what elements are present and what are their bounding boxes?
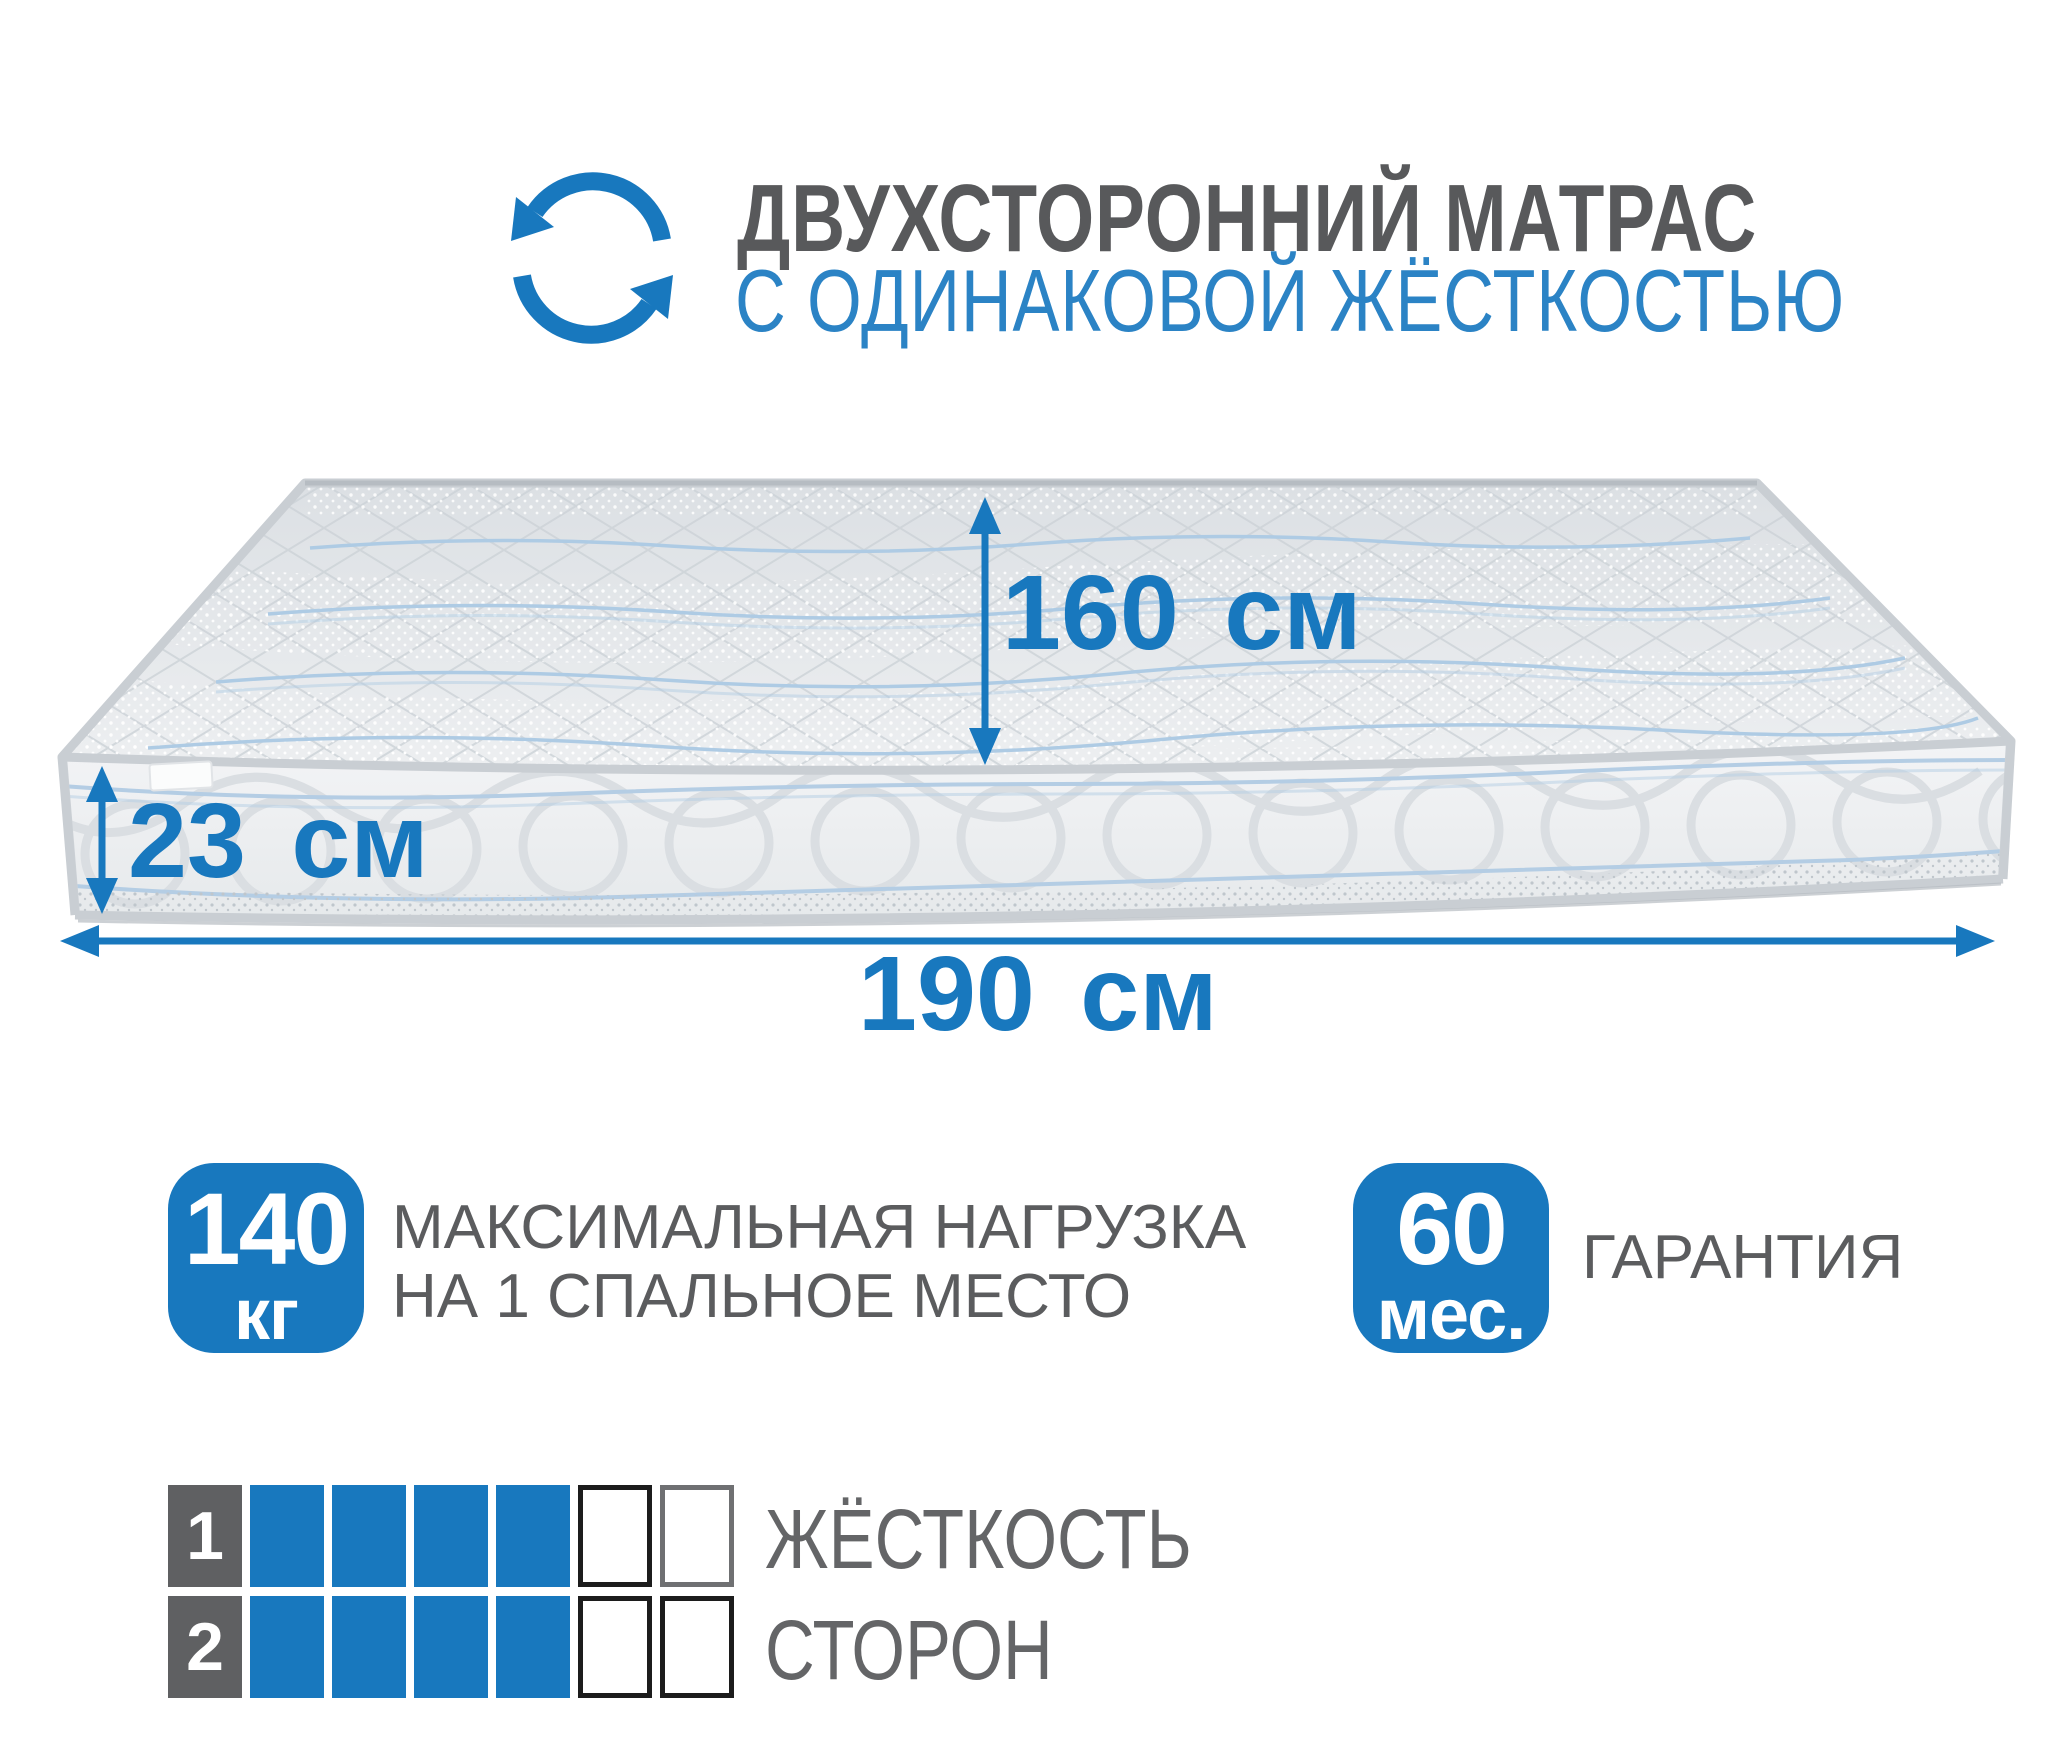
length-label: 190 см [858, 941, 1218, 1047]
max-load-label-line2: НА 1 СПАЛЬНОЕ МЕСТО [392, 1262, 1246, 1331]
page-subtitle: С ОДИНАКОВОЙ ЖЁСТКОСТЬЮ [735, 257, 1845, 345]
hardness-row-number: 2 [168, 1596, 242, 1698]
hardness-row-number: 1 [168, 1485, 242, 1587]
height-arrow [86, 766, 118, 914]
hardness-row-2: 2 [168, 1596, 734, 1698]
hardness-cell-filled [332, 1485, 406, 1587]
warranty-label: ГАРАНТИЯ [1582, 1223, 1903, 1292]
rotate-two-arrows-icon [511, 181, 673, 334]
hardness-row-1: 1 [168, 1485, 734, 1587]
hardness-cell-empty [578, 1485, 652, 1587]
hardness-cell-empty [660, 1596, 734, 1698]
hardness-label-line1: ЖЁСТКОСТЬ [765, 1497, 1192, 1581]
max-load-label: МАКСИМАЛЬНАЯ НАГРУЗКА НА 1 СПАЛЬНОЕ МЕСТ… [392, 1193, 1246, 1331]
warranty-value: 60 [1396, 1177, 1505, 1281]
max-load-unit: кг [234, 1279, 298, 1351]
hardness-cell-filled [414, 1596, 488, 1698]
height-label: 23 см [128, 788, 429, 894]
hardness-cell-empty [660, 1485, 734, 1587]
hardness-cell-filled [250, 1485, 324, 1587]
hardness-cell-filled [496, 1485, 570, 1587]
max-load-label-line1: МАКСИМАЛЬНАЯ НАГРУЗКА [392, 1193, 1246, 1262]
hardness-cell-empty [578, 1596, 652, 1698]
hardness-cell-filled [496, 1596, 570, 1698]
hardness-label-line2: СТОРОН [765, 1608, 1053, 1692]
bed-width-arrow [969, 497, 1001, 765]
hardness-cell-filled [414, 1485, 488, 1587]
bed-width-label: 160 см [1002, 560, 1362, 666]
max-load-value: 140 [184, 1177, 348, 1281]
warranty-badge: 60 мес. [1353, 1163, 1549, 1353]
max-load-badge: 140 кг [168, 1163, 364, 1353]
hardness-scale: 12 [168, 1485, 734, 1698]
warranty-unit: мес. [1377, 1279, 1525, 1351]
hardness-cell-filled [250, 1596, 324, 1698]
hardness-cell-filled [332, 1596, 406, 1698]
